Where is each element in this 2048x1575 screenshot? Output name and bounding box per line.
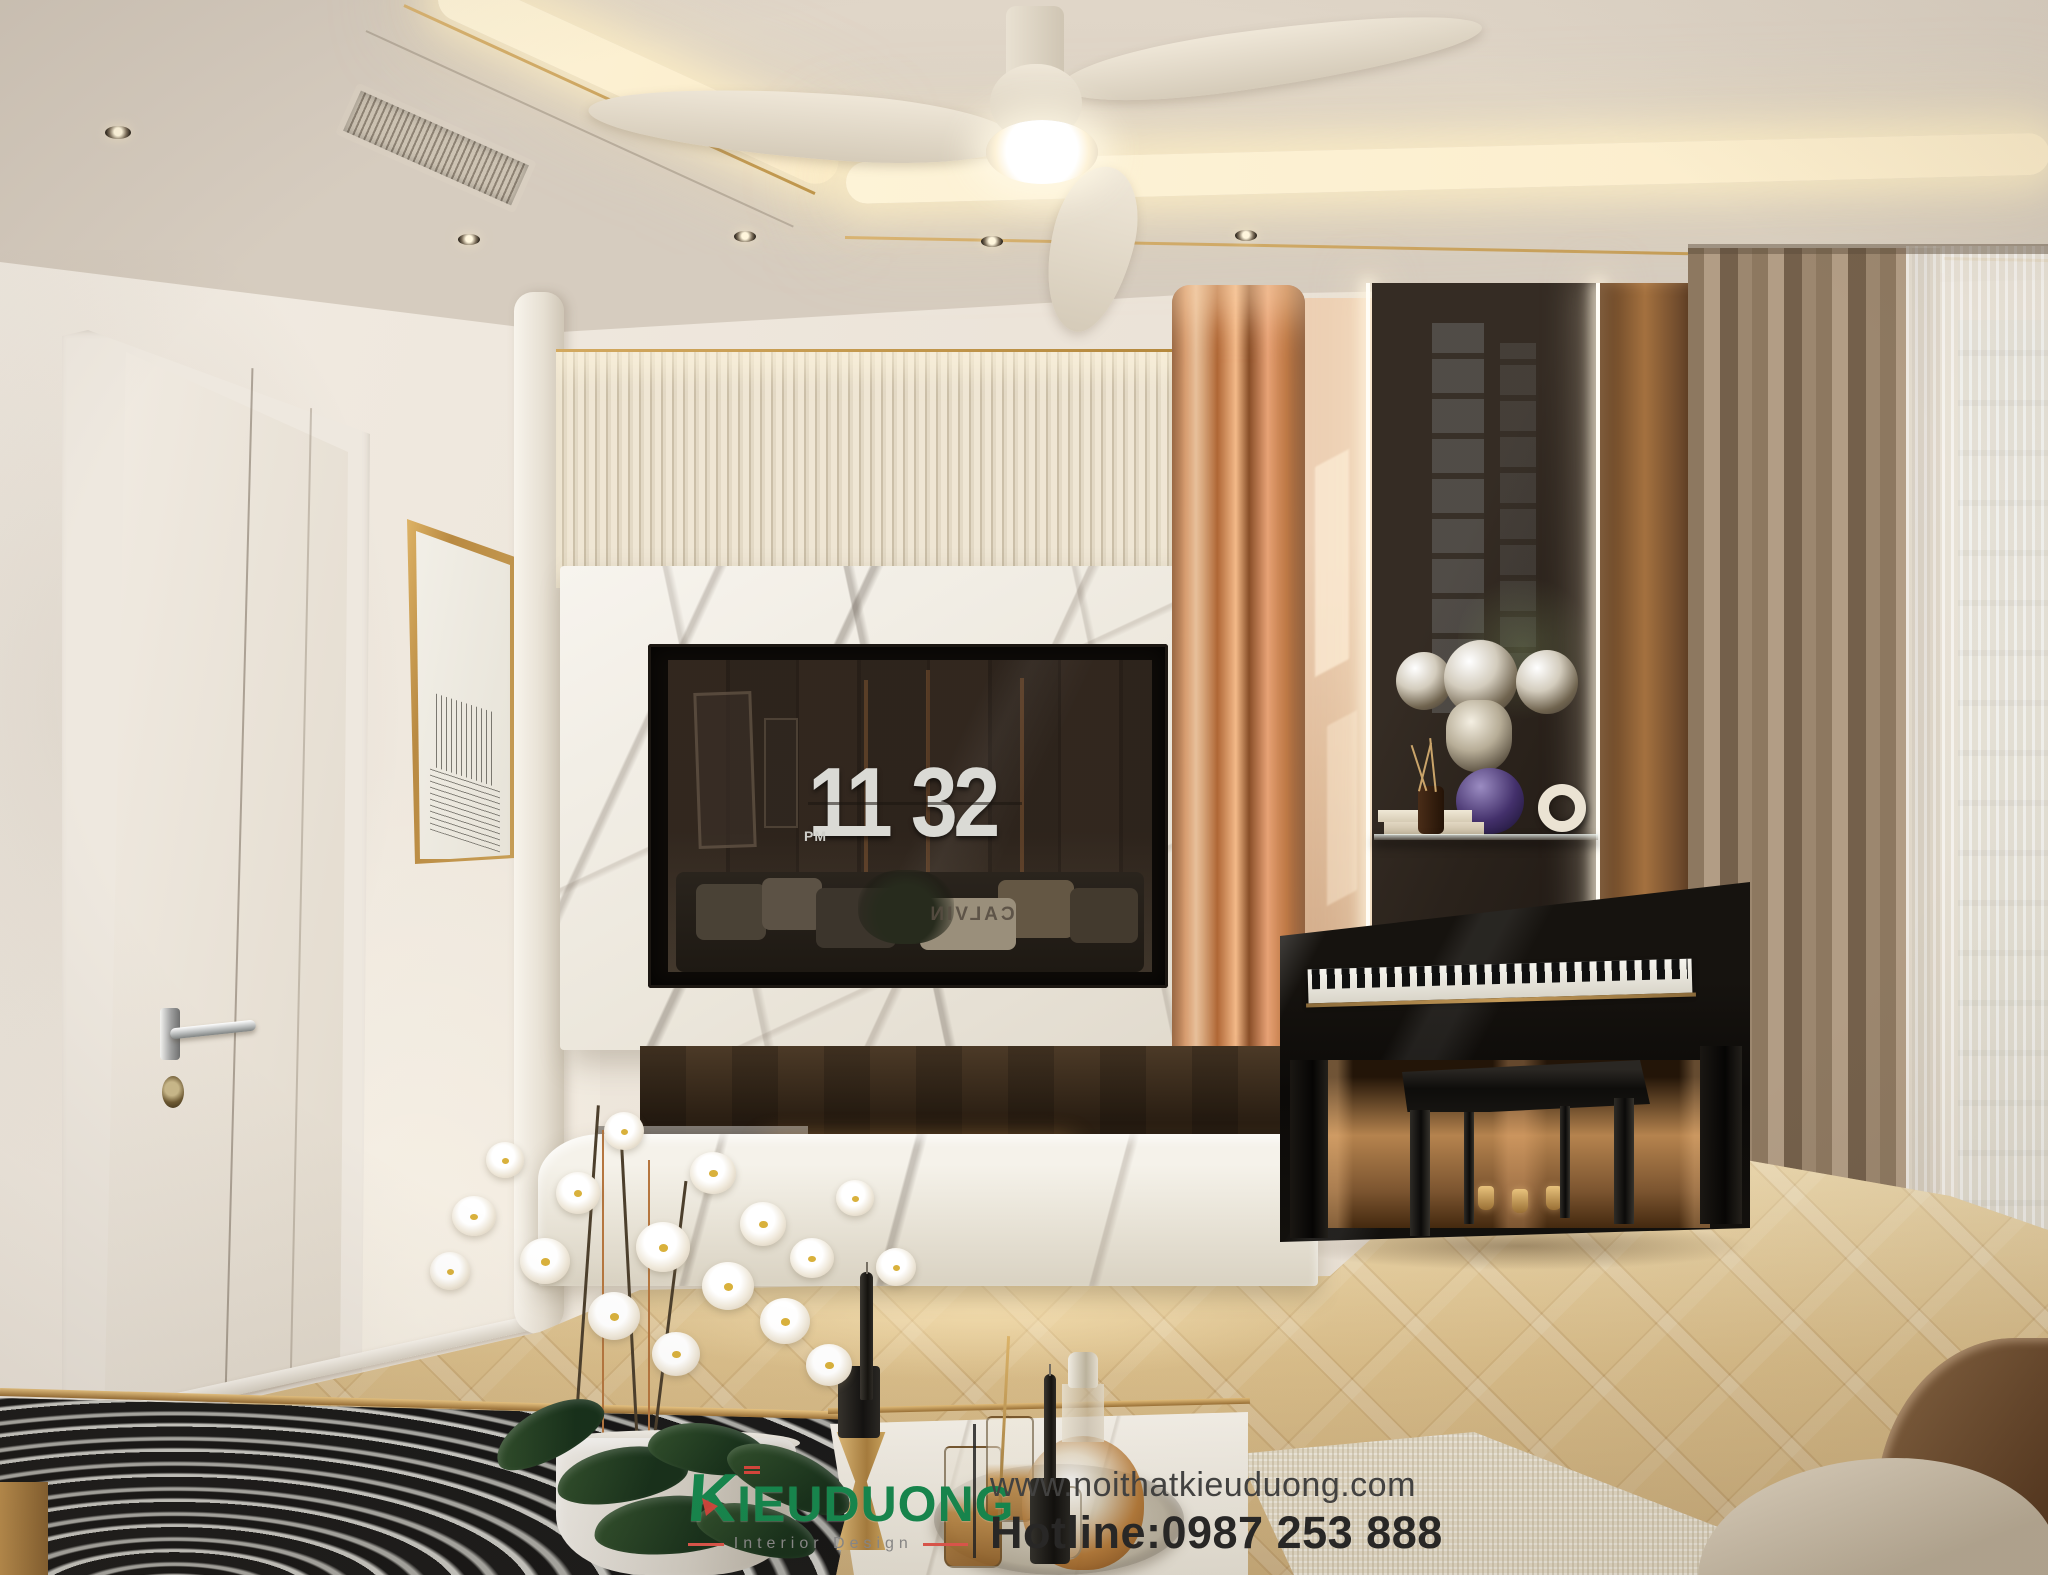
reed-diffuser: [1418, 786, 1444, 834]
gold-table-edge: [0, 1482, 48, 1575]
watermark-contact-block: www.noithatkieuduong.com Hotline:0987 25…: [990, 1466, 1443, 1559]
reflected-picture-frame: [764, 718, 798, 828]
watermark-logo-block: KIEUDUONG Interior Design: [688, 1468, 968, 1553]
website-text: www.noithatkieuduong.com: [990, 1466, 1443, 1505]
sculpture-disc: [1516, 650, 1578, 714]
sculpture-body: [1446, 700, 1512, 772]
brand-initial: K: [686, 1468, 739, 1528]
recessed-spotlight: [458, 234, 480, 245]
orchid-flower: [588, 1292, 640, 1340]
recessed-spotlight: [734, 231, 756, 242]
ceiling-fan-light: [986, 120, 1098, 184]
decor-ring: [1538, 784, 1586, 832]
orchid-flower: [876, 1248, 916, 1286]
decanter-stopper: [1068, 1352, 1098, 1388]
door: [98, 352, 348, 1410]
door-keyhole: [162, 1076, 184, 1108]
candle-wick: [1049, 1364, 1051, 1376]
tagline-left-rule: [688, 1543, 724, 1546]
orchid-flower: [702, 1262, 754, 1310]
copper-support-rod: [648, 1160, 650, 1450]
decanter-neck: [1062, 1384, 1104, 1442]
glass-shelf: [1374, 834, 1598, 840]
orchid-flower: [740, 1202, 786, 1246]
orchid-flower: [836, 1180, 874, 1216]
sheer-curtain: [1906, 246, 2048, 1292]
black-taper-candle: [860, 1272, 873, 1400]
copper-support-rod: [602, 1130, 604, 1450]
reflected-pillow: [1070, 888, 1138, 943]
bench-leg: [1614, 1098, 1634, 1224]
clock-meridiem: PM: [804, 828, 827, 844]
bench-seat: [1402, 1060, 1650, 1112]
orchid-flower: [806, 1344, 852, 1386]
piano-leg: [1700, 1046, 1742, 1224]
brand-logo: KIEUDUONG: [688, 1468, 968, 1531]
recessed-spotlight: [981, 236, 1003, 247]
flip-clock-split-line: [808, 802, 1022, 805]
reflected-pillow-text: CALVIN: [916, 904, 1026, 930]
hotline-text: Hotline:0987 253 888: [990, 1507, 1443, 1559]
curtain-pelmet-shadow: [1688, 244, 2048, 254]
brand-tagline: Interior Design: [734, 1535, 913, 1553]
orchid-flower: [452, 1196, 496, 1236]
bench-leg: [1560, 1106, 1570, 1218]
tagline-right-rule: [923, 1543, 968, 1546]
flip-clock: 1132 PM: [808, 754, 1038, 858]
recessed-spotlight: [105, 126, 131, 139]
gold-wall-trim: [556, 349, 1180, 352]
orchid-flower: [760, 1298, 810, 1344]
reflected-pillow: [696, 884, 766, 940]
wall-artwork: [400, 515, 522, 871]
orchid-flower: [790, 1238, 834, 1278]
orchid-flower: [690, 1152, 736, 1194]
watermark-divider: [973, 1424, 976, 1558]
bench-leg: [1410, 1110, 1430, 1236]
living-room-render: CALVIN 1132 PM: [0, 0, 2048, 1575]
recessed-spotlight: [1235, 230, 1257, 241]
orchid-flower: [486, 1142, 524, 1178]
ceiling-reflection: [1315, 449, 1349, 677]
piano-bench: [1402, 1052, 1652, 1244]
reflected-pillow: [762, 878, 822, 930]
tv-screen: CALVIN 1132 PM: [668, 660, 1152, 972]
orchid-flower: [520, 1238, 570, 1284]
orchid-flower: [604, 1112, 644, 1150]
candle-wick: [866, 1262, 868, 1274]
slat-panel-wall: [556, 352, 1180, 588]
orchid-flower: [556, 1172, 600, 1214]
reflected-picture-frame: [693, 691, 756, 849]
brand-tagline-row: Interior Design: [688, 1535, 968, 1553]
orchid-flower: [430, 1252, 470, 1290]
brand-red-marks-icon: [744, 1464, 760, 1474]
orchid-flower: [652, 1332, 700, 1376]
orchid-flower: [636, 1222, 690, 1272]
bench-leg: [1464, 1112, 1474, 1224]
piano-leg: [1290, 1060, 1328, 1238]
